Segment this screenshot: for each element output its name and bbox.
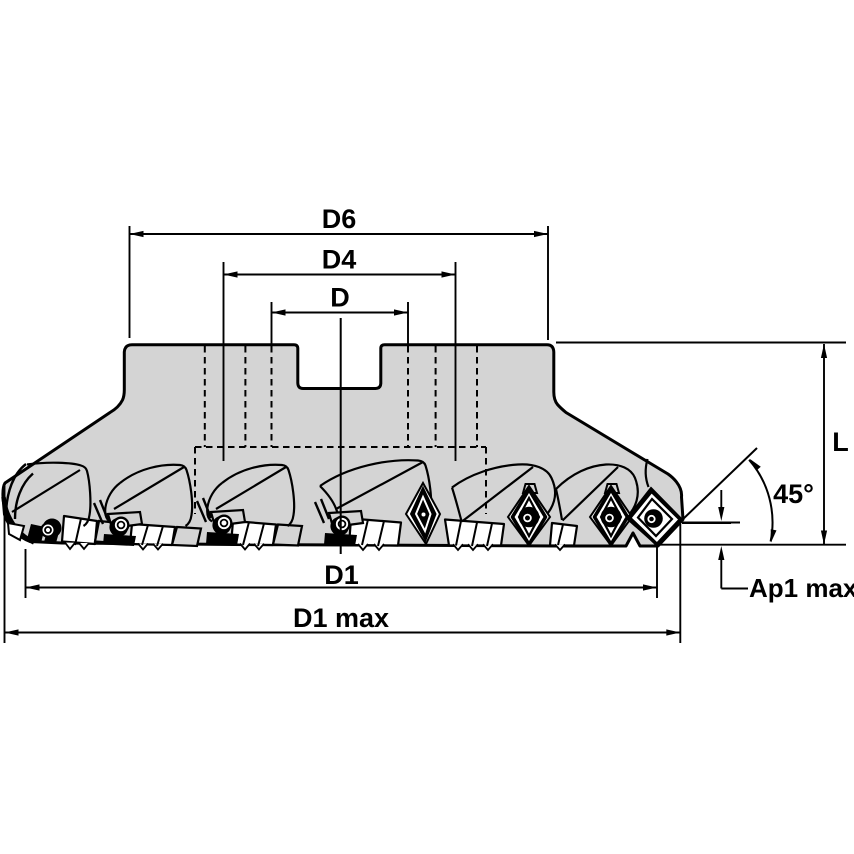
- svg-text:D6: D6: [322, 204, 357, 234]
- svg-text:D1: D1: [324, 560, 359, 590]
- svg-text:Ap1 max: Ap1 max: [749, 573, 854, 603]
- svg-text:D1 max: D1 max: [293, 603, 389, 633]
- svg-text:D: D: [330, 283, 350, 313]
- svg-text:D4: D4: [322, 245, 357, 275]
- svg-text:45°: 45°: [773, 479, 814, 509]
- svg-text:L: L: [832, 427, 849, 457]
